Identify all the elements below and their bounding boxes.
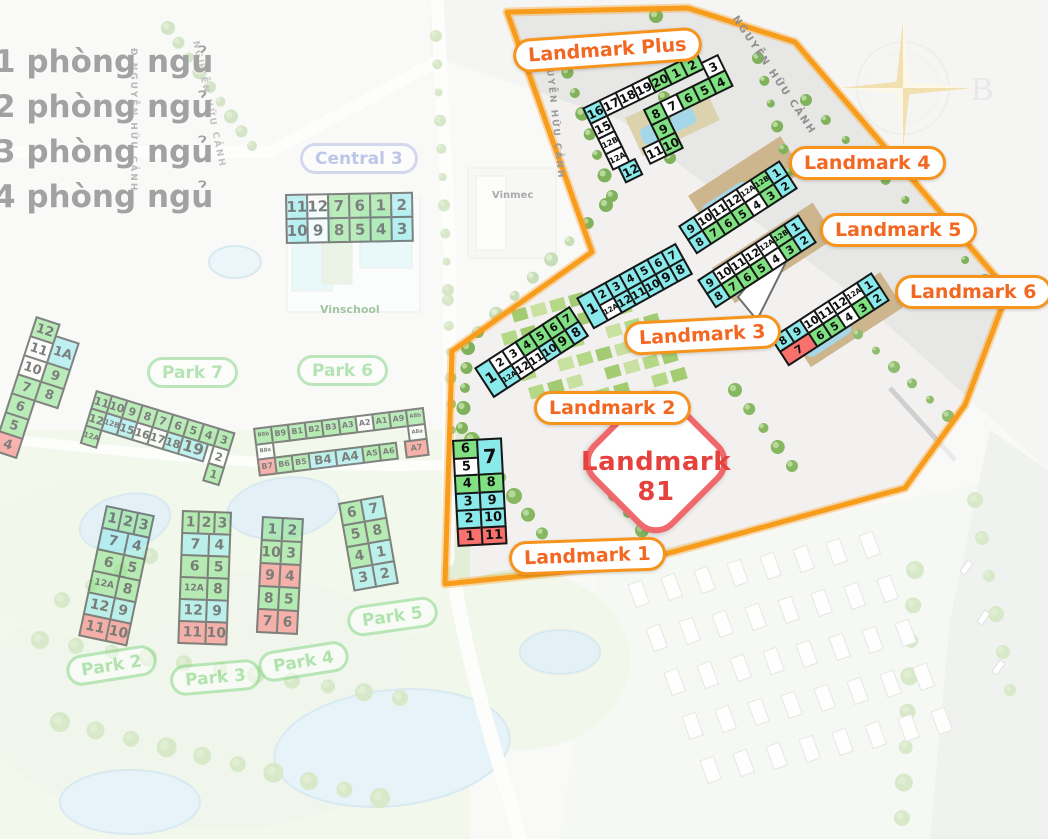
- unit-park-3-building-8: 8: [206, 577, 230, 602]
- unit-central-3-2: 2: [390, 192, 413, 218]
- label-landmark-1[interactable]: Landmark 1: [508, 536, 666, 575]
- unit-central-3-3: 3: [390, 216, 413, 242]
- unit-park-3-building-5: 5: [207, 555, 231, 580]
- label-park-6: Park 6: [297, 355, 388, 386]
- landmark-81-label: Landmark 81: [566, 447, 746, 507]
- unit-ab-blocks-A7: A7: [404, 438, 430, 458]
- unit-park-3-building-11: 11: [177, 620, 207, 645]
- label-landmark-5[interactable]: Landmark 5: [820, 213, 977, 247]
- legend-item: 1 phòng ngủ: [0, 40, 213, 85]
- unit-landmark-1-7[interactable]: 7: [476, 437, 504, 475]
- label-central-3: Central 3: [300, 143, 418, 174]
- unit-landmark-1-1[interactable]: 1: [457, 526, 484, 547]
- legend-item: 3 phòng ngủ: [0, 130, 213, 175]
- site-map: B 1 phòng ngủ2 phòng ngủ3 phòng ngủ4 phò…: [0, 0, 1048, 839]
- unit-park-3-building-3: 3: [213, 511, 232, 536]
- unit-landmark-1-11[interactable]: 11: [481, 525, 508, 546]
- unit-park-2-building-10: 10: [105, 618, 132, 646]
- unit-park-3-building-10: 10: [204, 621, 228, 646]
- legend-item: 2 phòng ngủ: [0, 85, 213, 130]
- unit-central-3-1: 1: [369, 192, 392, 218]
- unit-central-3-12: 12: [306, 193, 329, 219]
- unit-park-4-building-6: 6: [276, 609, 299, 635]
- unit-central-3-6: 6: [348, 192, 371, 218]
- unit-central-3-7: 7: [327, 193, 350, 219]
- label-landmark-4[interactable]: Landmark 4: [789, 146, 946, 180]
- unit-park-5-building-2: 2: [371, 560, 399, 588]
- unit-park-3-building-9: 9: [205, 599, 229, 624]
- label-park-7: Park 7: [147, 357, 238, 388]
- unit-central-3-5: 5: [348, 216, 371, 242]
- poi-vinschool: Vinschool: [320, 303, 380, 316]
- legend: 1 phòng ngủ2 phòng ngủ3 phòng ngủ4 phòng…: [0, 40, 213, 220]
- poi-vinmec: Vinmec: [492, 190, 533, 201]
- label-landmark-2[interactable]: Landmark 2: [534, 391, 691, 425]
- unit-park-3-building-4: 4: [208, 533, 232, 558]
- unit-central-3-4: 4: [369, 216, 392, 242]
- legend-item: 4 phòng ngủ: [0, 175, 213, 220]
- unit-central-3-8: 8: [327, 217, 350, 243]
- unit-ab-blocks-A6: A6: [378, 442, 399, 462]
- unit-central-3-10: 10: [285, 218, 308, 244]
- label-landmark-6[interactable]: Landmark 6: [895, 275, 1048, 309]
- unit-central-3-9: 9: [306, 217, 329, 243]
- unit-central-3-11: 11: [285, 194, 308, 220]
